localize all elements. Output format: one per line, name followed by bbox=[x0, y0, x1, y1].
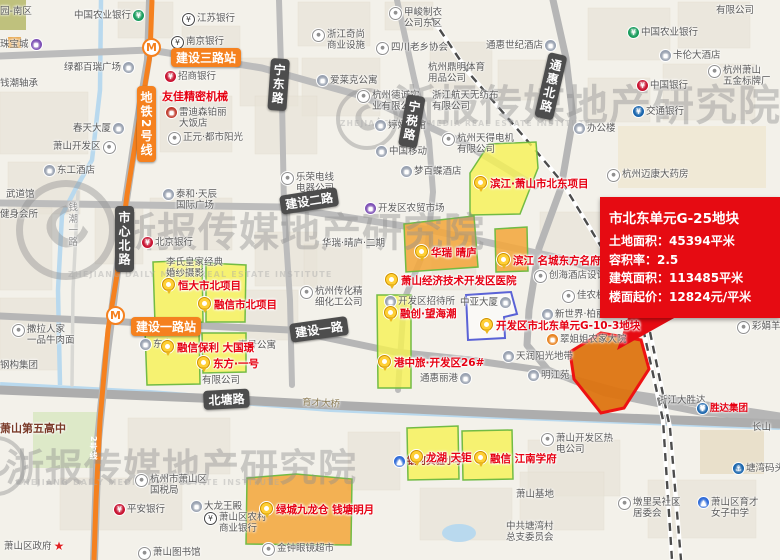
poi-xiaoshan-gov: 萧山区政府★ bbox=[4, 541, 65, 552]
poi-steel-group: 钢构集团 bbox=[0, 360, 38, 371]
label-hkctg-devzone-26: 港中旅·开发区26# bbox=[378, 355, 484, 370]
poi-tingting-inn-icon: ▪ bbox=[375, 120, 386, 131]
poi-maikang-pharmacy-label: 杭州迈康大药房 bbox=[622, 169, 689, 180]
poi-mengbaidie-hotel-icon: ▪ bbox=[401, 166, 412, 177]
poi-yucai-girls-school: ▲萧山区育才女子中学 bbox=[698, 497, 759, 519]
poi-wedding-photo-label: 李氏皇家经典婚纱摄影 bbox=[166, 257, 223, 279]
callout-plot-ratio: 容积率：2.5 bbox=[609, 251, 771, 270]
poi-zhongya-tower: 中亚大厦▪ bbox=[460, 297, 511, 308]
poi-sichuan-assoc-icon: ● bbox=[376, 42, 389, 55]
poi-tangwan-wharf-icon: ⚓ bbox=[733, 463, 744, 474]
poi-changshan-label: 长山 bbox=[752, 422, 771, 433]
poi-boc-bank: ¥中国银行 bbox=[637, 80, 688, 91]
poi-lvdu-plaza-icon: ▪ bbox=[123, 62, 134, 73]
poi-tangwan-party-branch: 中共塘湾村总支委员会 bbox=[506, 521, 554, 543]
parcel-huarui-qinglu[interactable] bbox=[404, 216, 478, 272]
station-label-jianshe-3: 建设三路站 bbox=[171, 48, 241, 67]
label-rongxin-shibei-text: 融信市北项目 bbox=[214, 297, 277, 312]
poi-qishang-commerce-icon: ● bbox=[312, 29, 325, 42]
label-binjiang-mingfu: 滨江 名城东方名府 bbox=[497, 253, 601, 268]
poi-zhongya-tower-label: 中亚大厦 bbox=[460, 297, 498, 308]
label-greentown-qiantang: 绿城九龙仓 钱塘明月 bbox=[260, 502, 374, 517]
label-hkctg-devzone-26-icon bbox=[378, 355, 391, 368]
poi-donggong-hotel-icon: ▪ bbox=[44, 165, 55, 176]
poi-beijing-bank: ¥北京银行 bbox=[142, 237, 193, 248]
poi-jiangsu-bank-icon: ¥ bbox=[182, 13, 195, 26]
poi-beijing-bank-icon: ¥ bbox=[142, 237, 153, 248]
label-longfor-tianju-text: 龙湖 天钜 bbox=[426, 450, 472, 465]
poi-rural-bank-icon: ¥ bbox=[204, 512, 217, 525]
poi-co-ltd-gray-label: 有限公司 bbox=[202, 375, 240, 386]
poi-office-building-label: 办公楼 bbox=[587, 123, 616, 134]
poi-dingming-sports-label: 杭州鼎明体育用品公司 bbox=[428, 62, 485, 84]
poi-taihe-plaza: ▪泰和·天辰国际广场 bbox=[163, 189, 217, 211]
poi-mengbaidie-hotel: ▪梦百蝶酒店 bbox=[401, 166, 462, 177]
poi-xiaoshan-5th-high-label: 萧山第五高中 bbox=[0, 423, 66, 436]
poi-lvdu-plaza-label: 绿都百瑞广场 bbox=[64, 62, 121, 73]
poi-pingan-bank-label: 平安银行 bbox=[127, 504, 165, 515]
poi-fitness-club: 健身会所 bbox=[0, 209, 38, 220]
poi-xiaoshan-devzone: 萧山开发区● bbox=[53, 141, 116, 154]
poi-zhongya-tower-icon: ▪ bbox=[500, 297, 511, 308]
poi-bocom-bank-icon: ¥ bbox=[633, 106, 644, 117]
poi-mengbaidie-hotel-label: 梦百蝶酒店 bbox=[414, 166, 462, 177]
poi-abc-bank-ne-label: 中国农业银行 bbox=[641, 27, 698, 38]
poi-devzone-thermal-icon: ● bbox=[541, 433, 554, 446]
poi-jiangsu-bank-label: 江苏银行 bbox=[197, 13, 235, 24]
poi-huarui-phase2: 华瑞·晴庐·二期 bbox=[322, 238, 385, 249]
label-devzone-hospital-icon bbox=[385, 273, 398, 286]
poi-china-mobile-label: 中国移动 bbox=[389, 146, 427, 157]
label-g10-3-icon bbox=[480, 318, 493, 331]
road-label-shixin-north: 市心北路 bbox=[115, 206, 134, 272]
poi-donggong-hotel-label: 东工酒店 bbox=[57, 165, 95, 176]
poi-glasses-store-label: 金钟眼镜超市 bbox=[277, 543, 334, 554]
label-hkctg-devzone-26-text: 港中旅·开发区26# bbox=[394, 355, 484, 370]
poi-karen-hotel: ▪卡伦大酒店 bbox=[660, 50, 721, 61]
poi-dalongwang-temple-label: 大龙王殿 bbox=[204, 501, 242, 512]
label-rongxin-baoli-daguojing-icon bbox=[161, 340, 174, 353]
poi-taihe-plaza-label: 泰和·天辰国际广场 bbox=[176, 189, 217, 211]
poi-wudaoguan-label: 武道馆 bbox=[6, 189, 35, 200]
callout-floor-area: 建筑面积：113485平米 bbox=[609, 269, 771, 288]
poi-cuijiejie-farmhouse-label: 翠姐姐农家大院 bbox=[560, 334, 627, 345]
map-canvas[interactable]: 市北东单元G-25地块 土地面积：45394平米 容积率：2.5 建筑面积：11… bbox=[0, 0, 780, 560]
poi-dingming-sports: 杭州鼎明体育用品公司 bbox=[428, 62, 485, 84]
poi-changshan: 长山 bbox=[752, 422, 771, 433]
poi-cmb-bank-label: 招商银行 bbox=[178, 71, 216, 82]
poi-shengda-group-label: 胜达集团 bbox=[710, 403, 748, 414]
metro-line-mini-label: 2号线 bbox=[88, 436, 99, 461]
poi-xiaoshan-library: ●萧山图书馆 bbox=[138, 547, 201, 560]
city-block bbox=[0, 208, 52, 290]
poi-dalongwang-temple-icon: ▪ bbox=[191, 501, 202, 512]
poi-xiaoshan-library-label: 萧山图书馆 bbox=[153, 547, 201, 558]
label-dongfang-yihao: 东方·一号 bbox=[197, 356, 259, 371]
poi-zhengyuan-sunshine: ●正元·都市阳光 bbox=[168, 132, 243, 145]
label-rongxin-jiangnan-text: 融信 江南学府 bbox=[490, 451, 557, 466]
poi-pingan-bank-icon: ¥ bbox=[114, 504, 125, 515]
label-rongxin-shibei: 融信市北项目 bbox=[198, 297, 277, 312]
poi-office-building-icon: ▪ bbox=[574, 123, 585, 134]
poi-abc-bank-ne: ¥中国农业银行 bbox=[628, 27, 698, 38]
poi-huarui-phase2-label: 华瑞·晴庐·二期 bbox=[322, 238, 385, 249]
poi-spring-tower-label: 春天大厦 bbox=[73, 123, 111, 134]
poi-dunliwu-committee-icon: ● bbox=[618, 497, 631, 510]
poi-sunshine-zone: ▪天润阳光地带 bbox=[503, 351, 573, 362]
city-block bbox=[348, 432, 400, 490]
poi-rural-bank: ¥萧山区农村商业银行 bbox=[204, 512, 267, 534]
poi-devzone-thermal-label: 萧山开发区热电公司 bbox=[556, 433, 613, 455]
poi-chuanhua-chem: ●杭州传化精细化工公司 bbox=[300, 286, 363, 308]
label-binjiang-shibeidong: 滨江·萧山市北东项目 bbox=[474, 176, 589, 191]
poi-qishang-commerce: ●浙江奇尚商业设施 bbox=[312, 29, 365, 51]
poi-jiajun-garment: ●甲峻制衣公司东区 bbox=[389, 7, 442, 29]
poi-chuanghai-hotel-design-label: 创海酒店设计 bbox=[549, 270, 606, 281]
poi-jianong-machinery-icon: ● bbox=[562, 290, 575, 303]
poi-co-partial: 有限公司 bbox=[716, 5, 754, 16]
poi-salar-noodle-icon: ● bbox=[12, 324, 25, 337]
poi-boc-bank-label: 中国银行 bbox=[650, 80, 688, 91]
poi-tonghui-ligang: 通惠丽港▪ bbox=[420, 373, 471, 384]
metro-station-logo-icon: M bbox=[142, 38, 161, 57]
poi-metal-sign-factory-label: 杭州萧山五金标牌厂 bbox=[723, 65, 771, 87]
poi-jewelry-city-label: 珠宝城 bbox=[0, 39, 29, 50]
poi-tonghui-ligang-icon: ▪ bbox=[460, 373, 471, 384]
poi-caijuan-cashmere-label: 彩娟羊绒店 bbox=[752, 321, 780, 332]
poi-metal-sign-factory: ●杭州萧山五金标牌厂 bbox=[708, 65, 771, 87]
poi-tonghui-century-hotel-icon: ▪ bbox=[545, 40, 556, 51]
callout-floor-price: 楼面起价：12824元/平米 bbox=[609, 288, 771, 307]
label-huarui-qinglu-icon bbox=[415, 245, 428, 258]
label-dongfang-yihao-text: 东方·一号 bbox=[213, 356, 259, 371]
poi-chuanghai-hotel-design-icon: ● bbox=[534, 270, 547, 283]
poi-ailaike-apartment: ▪爱莱克公寓 bbox=[317, 75, 378, 86]
poi-ailaike-apartment-icon: ▪ bbox=[317, 75, 328, 86]
poi-youjia-machinery-label: 友佳精密机械 bbox=[162, 91, 228, 104]
poi-china-mobile-icon: ▪ bbox=[376, 146, 387, 157]
label-huarui-qinglu: 华瑞 晴庐 bbox=[415, 245, 477, 260]
poi-cuijiejie-farmhouse: ▪翠姐姐农家大院 bbox=[547, 334, 627, 345]
poi-sunshine-zone-label: 天润阳光地带 bbox=[516, 351, 573, 362]
poi-devzone-market-label: 开发区农贸市场 bbox=[378, 203, 445, 214]
poi-glasses-store: ●金钟眼镜超市 bbox=[262, 543, 334, 556]
poi-dongfang-gray-icon: ▪ bbox=[140, 339, 151, 350]
label-hengda-shibei-icon bbox=[162, 278, 175, 291]
poi-tax-bureau-icon: ● bbox=[135, 474, 148, 487]
station-label-jianshe-1: 建设一路站 bbox=[131, 317, 201, 336]
label-longfor-tianju-icon bbox=[410, 450, 423, 463]
label-binjiang-mingfu-text: 滨江 名城东方名府 bbox=[513, 253, 601, 268]
poi-caijuan-cashmere-icon: ● bbox=[737, 321, 750, 334]
label-g10-3: 开发区市北东单元G-10-3地块 bbox=[480, 318, 640, 333]
poi-qianchao-bearing: 钱潮轴承 bbox=[0, 78, 38, 89]
poi-xiaoshan-gov-label: 萧山区政府 bbox=[4, 541, 52, 552]
poi-sichuan-assoc-label: 四川老乡协会 bbox=[391, 42, 448, 53]
poi-hangtian-nonwoven-label: 浙江航天无纺布有限公司 bbox=[432, 90, 499, 112]
poi-chuanhua-chem-icon: ● bbox=[300, 286, 313, 299]
poi-karen-hotel-icon: ▪ bbox=[660, 50, 671, 61]
poi-spring-tower-icon: ▪ bbox=[113, 123, 124, 134]
label-rongchuang-wanghaichao-icon bbox=[384, 306, 397, 319]
poi-qianchao-bearing-label: 钱潮轴承 bbox=[0, 78, 38, 89]
callout-land-area: 土地面积：45394平米 bbox=[609, 232, 771, 251]
poi-wudaoguan: 武道馆 bbox=[6, 189, 35, 200]
poi-caijuan-cashmere: ●彩娟羊绒店 bbox=[737, 321, 780, 334]
poi-hangtian-nonwoven: 浙江航天无纺布有限公司 bbox=[432, 90, 499, 112]
label-rongxin-baoli-daguojing: 融信保利 大国璟 bbox=[161, 340, 254, 355]
poi-dalongwang-temple: ▪大龙王殿 bbox=[191, 501, 242, 512]
poi-boc-bank-icon: ¥ bbox=[637, 80, 648, 91]
poi-jiajun-garment-label: 甲峻制衣公司东区 bbox=[404, 7, 442, 29]
poi-yucai-bridge-label: 育才大桥 bbox=[302, 397, 341, 410]
label-greentown-qiantang-text: 绿城九龙仓 钱塘明月 bbox=[276, 502, 374, 517]
poi-tonghui-century-hotel: 通惠世纪酒店▪ bbox=[486, 40, 556, 51]
poi-xiaoshan-base-label: 萧山基地 bbox=[516, 489, 554, 500]
poi-tiande-motor-icon: ● bbox=[442, 133, 455, 146]
label-hengda-shibei: 恒大市北项目 bbox=[162, 278, 241, 293]
poi-ailaike-apartment-label: 爱莱克公寓 bbox=[330, 75, 378, 86]
poi-radisson-hotel: ▪雷迪森铂丽大饭店 bbox=[166, 107, 227, 129]
project-info-callout: 市北东单元G-25地块 土地面积：45394平米 容积率：2.5 建筑面积：11… bbox=[600, 197, 780, 318]
poi-youjia-machinery: 友佳精密机械 bbox=[162, 91, 228, 104]
poi-yuan-nanqu: 园-南区 bbox=[0, 6, 32, 17]
poi-cuijiejie-farmhouse-icon: ▪ bbox=[547, 334, 558, 345]
road-label-beitang: 北塘路 bbox=[203, 389, 250, 410]
poi-abc-bank-nw-label: 中国农业银行 bbox=[74, 10, 131, 21]
road-label-ningdong: 宁东路 bbox=[267, 58, 290, 111]
poi-tiande-motor: ●杭州天得电机有限公司 bbox=[442, 133, 514, 155]
poi-zhengyuan-sunshine-label: 正元·都市阳光 bbox=[183, 132, 243, 143]
city-block bbox=[128, 418, 230, 474]
label-binjiang-shibeidong-icon bbox=[474, 176, 487, 189]
poi-glasses-store-icon: ● bbox=[262, 543, 275, 556]
poi-mingjiang-garden-label: 明江苑 bbox=[541, 370, 570, 381]
poi-abc-bank-nw: 中国农业银行¥ bbox=[74, 10, 144, 21]
poi-pingan-bank: ¥平安银行 bbox=[114, 504, 165, 515]
label-rongxin-baoli-daguojing-text: 融信保利 大国璟 bbox=[177, 340, 254, 355]
poi-taihe-plaza-icon: ▪ bbox=[163, 189, 174, 200]
poi-abc-bank-nw-icon: ¥ bbox=[133, 10, 144, 21]
poi-xiaoshan-base: 萧山基地 bbox=[516, 489, 554, 500]
poi-beijing-bank-label: 北京银行 bbox=[155, 237, 193, 248]
label-hengda-shibei-text: 恒大市北项目 bbox=[178, 278, 241, 293]
label-binjiang-mingfu-icon bbox=[497, 253, 510, 266]
label-dongfang-yihao-icon bbox=[197, 356, 210, 369]
poi-mingjiang-garden-icon: ▪ bbox=[528, 370, 539, 381]
poi-zhengyuan-sunshine-icon: ● bbox=[168, 132, 181, 145]
poi-lvdu-plaza: 绿都百瑞广场▪ bbox=[64, 62, 134, 73]
poi-xiaoshan-gov-icon: ★ bbox=[54, 541, 65, 552]
poi-qianchao-1st-road-label: 钱潮一路 bbox=[66, 202, 77, 248]
poi-xiaoshan-devzone-label: 萧山开发区 bbox=[53, 141, 101, 152]
poi-salar-noodle-label: 撒拉人家一品牛肉面 bbox=[27, 324, 75, 346]
metro-station-logo-icon: M bbox=[106, 306, 125, 325]
poi-jewelry-city-icon: ▪ bbox=[31, 39, 42, 50]
poi-radisson-hotel-icon: ▪ bbox=[166, 107, 177, 118]
poi-co-partial-label: 有限公司 bbox=[716, 5, 754, 16]
label-rongchuang-wanghaichao: 融创·望海潮 bbox=[384, 306, 457, 321]
poi-shengda-group: ¥胜达集团 bbox=[697, 403, 748, 414]
metro-line-label: 地铁2号线 bbox=[137, 86, 156, 162]
poi-devzone-market-icon: ▪ bbox=[365, 203, 376, 214]
label-huarui-qinglu-text: 华瑞 晴庐 bbox=[431, 245, 477, 260]
city-block bbox=[304, 244, 362, 288]
poi-galaxy-primary-school-icon: ▲ bbox=[394, 456, 405, 467]
poi-sichuan-assoc: ●四川老乡协会 bbox=[376, 42, 448, 55]
poi-yucai-girls-school-icon: ▲ bbox=[698, 497, 709, 508]
poi-salar-noodle: ●撒拉人家一品牛肉面 bbox=[12, 324, 75, 346]
poi-devzone-market: ▪开发区农贸市场 bbox=[365, 203, 445, 214]
poi-china-mobile: ▪中国移动 bbox=[376, 146, 427, 157]
poi-yucai-girls-school-label: 萧山区育才女子中学 bbox=[711, 497, 759, 519]
poi-wedding-photo: 李氏皇家经典婚纱摄影 bbox=[166, 257, 223, 279]
poi-mingjiang-garden: ▪明江苑 bbox=[528, 370, 570, 381]
poi-tangwan-wharf: ⚓塘湾码头 bbox=[733, 463, 780, 474]
poi-lerong-wire-icon: ● bbox=[281, 172, 294, 185]
label-longfor-tianju: 龙湖 天钜 bbox=[410, 450, 472, 465]
poi-xiaoshan-devzone-icon: ● bbox=[103, 141, 116, 154]
poi-chuanghai-hotel-design: ●创海酒店设计 bbox=[534, 270, 606, 283]
poi-donggong-hotel: ▪东工酒店 bbox=[44, 165, 95, 176]
poi-metal-sign-factory-icon: ● bbox=[708, 65, 721, 78]
poi-maikang-pharmacy: ●杭州迈康大药房 bbox=[607, 169, 689, 182]
poi-co-ltd-gray: 有限公司 bbox=[202, 375, 240, 386]
poi-nanjing-bank-label: 南京银行 bbox=[186, 36, 224, 47]
label-rongchuang-wanghaichao-text: 融创·望海潮 bbox=[400, 306, 457, 321]
poi-office-building: ▪办公楼 bbox=[574, 123, 616, 134]
poi-dunliwu-committee: ●墩里吴社区居委会 bbox=[618, 497, 681, 519]
poi-decheng-industry-icon: ● bbox=[357, 90, 370, 103]
poi-radisson-hotel-label: 雷迪森铂丽大饭店 bbox=[179, 107, 227, 129]
poi-tangwan-party-branch-label: 中共塘湾村总支委员会 bbox=[506, 521, 554, 543]
poi-jiangsu-bank: ¥江苏银行 bbox=[182, 13, 235, 26]
label-binjiang-shibeidong-text: 滨江·萧山市北东项目 bbox=[490, 176, 589, 191]
label-rongxin-shibei-icon bbox=[198, 297, 211, 310]
poi-chuanhua-chem-label: 杭州传化精细化工公司 bbox=[315, 286, 363, 308]
poi-xiaoshan-5th-high: 萧山第五高中 bbox=[0, 423, 66, 436]
poi-qianchao-1st-road: 钱潮一路 bbox=[66, 202, 77, 248]
poi-tax-bureau: ●杭州市萧山区国税局 bbox=[135, 474, 207, 496]
poi-shengda-group-icon: ¥ bbox=[697, 403, 708, 414]
poi-bocom-bank-label: 交通银行 bbox=[646, 106, 684, 117]
pond bbox=[442, 524, 476, 542]
poi-bocom-bank: ¥交通银行 bbox=[633, 106, 684, 117]
poi-spring-tower: 春天大厦▪ bbox=[73, 123, 124, 134]
poi-abc-bank-ne-icon: ¥ bbox=[628, 27, 639, 38]
poi-steel-group-label: 钢构集团 bbox=[0, 360, 38, 371]
poi-tangwan-wharf-label: 塘湾码头 bbox=[746, 463, 780, 474]
poi-jewelry-city: 珠宝城▪ bbox=[0, 39, 42, 50]
label-g10-3-text: 开发区市北东单元G-10-3地块 bbox=[496, 318, 640, 333]
poi-xiaoshan-library-icon: ● bbox=[138, 547, 151, 560]
poi-tiande-motor-label: 杭州天得电机有限公司 bbox=[457, 133, 514, 155]
poi-jiajun-garment-icon: ● bbox=[389, 7, 402, 20]
poi-fitness-club-label: 健身会所 bbox=[0, 209, 38, 220]
label-devzone-hospital: 萧山经济技术开发区医院 bbox=[385, 273, 517, 288]
callout-title: 市北东单元G-25地块 bbox=[609, 207, 771, 227]
poi-dunliwu-committee-label: 墩里吴社区居委会 bbox=[633, 497, 681, 519]
label-rongxin-jiangnan-icon bbox=[474, 451, 487, 464]
poi-tax-bureau-label: 杭州市萧山区国税局 bbox=[150, 474, 207, 496]
poi-cmb-bank-icon: ¥ bbox=[165, 71, 176, 82]
poi-karen-hotel-label: 卡伦大酒店 bbox=[673, 50, 721, 61]
poi-tonghui-ligang-label: 通惠丽港 bbox=[420, 373, 458, 384]
poi-tonghui-century-hotel-label: 通惠世纪酒店 bbox=[486, 40, 543, 51]
poi-maikang-pharmacy-icon: ● bbox=[607, 169, 620, 182]
poi-sunshine-zone-icon: ▪ bbox=[503, 351, 514, 362]
poi-qishang-commerce-label: 浙江奇尚商业设施 bbox=[327, 29, 365, 51]
poi-yucai-bridge: 育才大桥 bbox=[302, 397, 341, 410]
poi-yuan-nanqu-label: 园-南区 bbox=[0, 6, 32, 17]
label-rongxin-jiangnan: 融信 江南学府 bbox=[474, 451, 557, 466]
poi-cmb-bank: ¥招商银行 bbox=[165, 71, 216, 82]
label-devzone-hospital-text: 萧山经济技术开发区医院 bbox=[401, 273, 517, 288]
label-greentown-qiantang-icon bbox=[260, 502, 273, 515]
